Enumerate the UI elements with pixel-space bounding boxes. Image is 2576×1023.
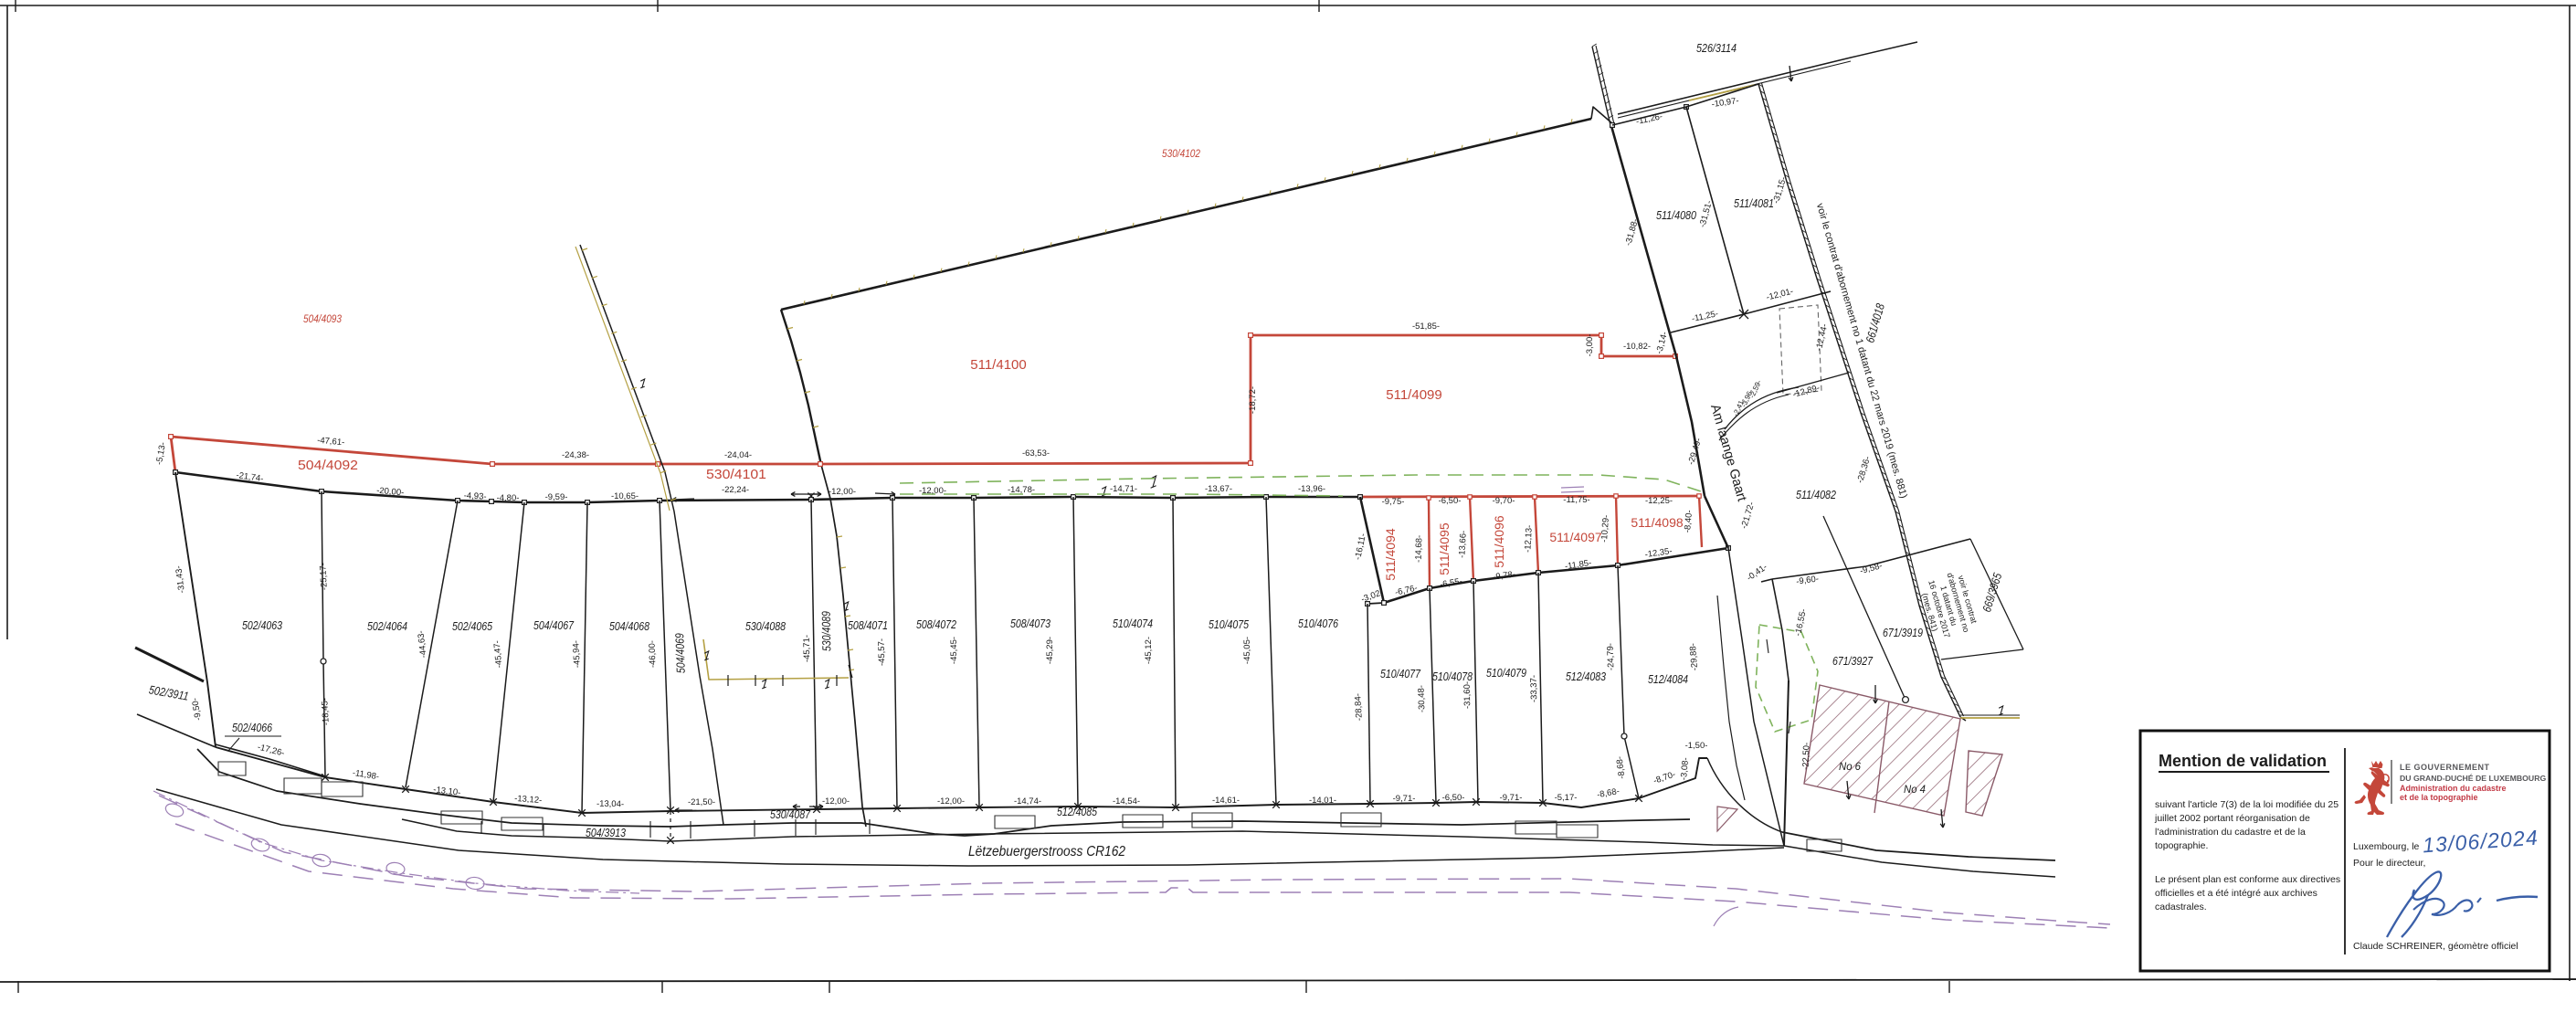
svg-text:530/4087: 530/4087 <box>770 807 811 821</box>
svg-text:officielles et a été intégré a: officielles et a été intégré aux archive… <box>2155 888 2317 899</box>
svg-text:-13,96-: -13,96- <box>1298 484 1325 494</box>
svg-text:-14,78-: -14,78- <box>1008 485 1035 495</box>
svg-text:-45,29-: -45,29- <box>1045 637 1055 664</box>
svg-text:502/4063: 502/4063 <box>242 618 283 632</box>
svg-text:-12,13-: -12,13- <box>1523 525 1535 554</box>
svg-text:-14,54-: -14,54- <box>1113 796 1140 807</box>
svg-text:-6,50-: -6,50- <box>1439 496 1462 506</box>
svg-text:504/3913: 504/3913 <box>586 826 627 839</box>
svg-text:669/3965: 669/3965 <box>1980 571 2004 614</box>
svg-text:-28,36-: -28,36- <box>1855 455 1873 484</box>
svg-text:-16,55-: -16,55- <box>1793 608 1809 638</box>
svg-text:511/4082: 511/4082 <box>1796 488 1837 501</box>
svg-text:-13,04-: -13,04- <box>596 799 624 810</box>
svg-text:-45,12-: -45,12- <box>1144 637 1154 664</box>
svg-text:-12,00-: -12,00- <box>937 796 965 807</box>
svg-text:502/4065: 502/4065 <box>452 619 493 633</box>
svg-text:-2,59-: -2,59- <box>1747 378 1763 399</box>
svg-text:-11,26-: -11,26- <box>1635 111 1663 127</box>
svg-text:510/4077: 510/4077 <box>1380 667 1421 680</box>
svg-text:Luxembourg, le: Luxembourg, le <box>2353 841 2420 852</box>
svg-text:504/4067: 504/4067 <box>533 618 575 632</box>
svg-text:-30,48-: -30,48- <box>1416 685 1427 712</box>
svg-text:-24,38-: -24,38- <box>562 450 589 460</box>
svg-text:508/4072: 508/4072 <box>916 617 957 631</box>
svg-text:No 6: No 6 <box>1839 760 1861 773</box>
svg-text:-13,66-: -13,66- <box>1457 531 1469 559</box>
svg-text:508/4073: 508/4073 <box>1010 617 1051 630</box>
svg-text:504/4069: 504/4069 <box>672 633 688 673</box>
svg-text:-14,74-: -14,74- <box>1014 796 1041 807</box>
svg-text:cadastrales.: cadastrales. <box>2155 902 2207 912</box>
svg-text:-3,08-: -3,08- <box>1679 757 1691 781</box>
svg-text:topographie.: topographie. <box>2155 840 2208 851</box>
svg-text:-46,00-: -46,00- <box>647 640 658 668</box>
svg-text:-4,80-: -4,80- <box>497 493 520 503</box>
svg-text:Claude SCHREINER, géomètre off: Claude SCHREINER, géomètre officiel <box>2353 941 2518 952</box>
svg-text:-11,98-: -11,98- <box>352 768 380 782</box>
svg-text:-9,60-: -9,60- <box>1796 574 1820 586</box>
svg-text:671/3919: 671/3919 <box>1883 626 1923 639</box>
svg-text:LE GOUVERNEMENT: LE GOUVERNEMENT <box>2400 763 2490 772</box>
svg-text:-16,11-: -16,11- <box>1353 533 1368 561</box>
svg-text:-13,12-: -13,12- <box>514 794 543 806</box>
svg-text:-33,37-: -33,37- <box>1529 675 1540 702</box>
svg-text:No 4: No 4 <box>1904 783 1926 796</box>
svg-text:-3,14-: -3,14- <box>1654 331 1670 355</box>
svg-text:Administration du cadastre: Administration du cadastre <box>2400 784 2507 793</box>
svg-text:-8,40-: -8,40- <box>1683 510 1694 533</box>
svg-text:-18,72-: -18,72- <box>1248 386 1258 414</box>
svg-text:Lëtzebuergerstrooss CR162: Lëtzebuergerstrooss CR162 <box>968 844 1125 860</box>
svg-text:et de la topographie: et de la topographie <box>2400 793 2478 802</box>
svg-text:-24,04-: -24,04- <box>724 450 752 460</box>
svg-text:-1,50-: -1,50- <box>1685 741 1708 751</box>
svg-text:-44,63-: -44,63- <box>416 630 428 659</box>
svg-text:juillet 2002 portant réorganis: juillet 2002 portant réorganisation de <box>2154 813 2310 824</box>
svg-text:-9,50-: -9,50- <box>190 697 204 721</box>
svg-text:-5,13-: -5,13- <box>154 441 168 465</box>
svg-text:511/4080: 511/4080 <box>1656 208 1697 222</box>
svg-text:502/4064: 502/4064 <box>367 619 407 633</box>
svg-text:-22,24-: -22,24- <box>722 485 749 495</box>
svg-text:-8,70-: -8,70- <box>1652 769 1677 786</box>
svg-text:-12,25-: -12,25- <box>1645 496 1673 506</box>
svg-text:512/4083: 512/4083 <box>1566 670 1607 683</box>
svg-text:-14,01-: -14,01- <box>1309 796 1336 806</box>
svg-text:-31,43-: -31,43- <box>174 565 187 594</box>
svg-text:-22,50-: -22,50- <box>1800 743 1811 770</box>
svg-text:-45,71-: -45,71- <box>802 635 813 662</box>
svg-text:502/3911: 502/3911 <box>148 682 190 702</box>
svg-text:-21,72-: -21,72- <box>1739 501 1757 530</box>
svg-text:-9,71-: -9,71- <box>1500 793 1523 803</box>
svg-text:530/4089: 530/4089 <box>819 611 834 651</box>
svg-text:-8,68-: -8,68- <box>1615 755 1628 779</box>
svg-text:-5,17-: -5,17- <box>1555 793 1578 803</box>
svg-text:510/4074: 510/4074 <box>1113 617 1153 630</box>
svg-text:-51,85-: -51,85- <box>1412 322 1440 332</box>
svg-text:504/4068: 504/4068 <box>609 619 650 633</box>
svg-text:510/4079: 510/4079 <box>1486 666 1526 680</box>
svg-text:-28,84-: -28,84- <box>1353 693 1365 722</box>
svg-text:504/4093: 504/4093 <box>303 312 342 325</box>
svg-text:Pour le directeur,: Pour le directeur, <box>2353 858 2425 869</box>
svg-text:suivant l'article 7(3) de la l: suivant l'article 7(3) de la loi modifié… <box>2155 799 2338 810</box>
svg-text:Le présent plan est conforme a: Le présent plan est conforme aux directi… <box>2155 874 2340 885</box>
svg-text:-9,59-: -9,59- <box>545 492 568 502</box>
svg-text:512/4085: 512/4085 <box>1057 805 1098 818</box>
svg-text:-18,45-: -18,45- <box>320 698 332 726</box>
svg-text:-9,71-: -9,71- <box>1393 794 1416 804</box>
svg-text:-12,01-: -12,01- <box>1765 287 1794 303</box>
svg-text:-29,88-: -29,88- <box>1688 643 1700 671</box>
svg-text:-45,94-: -45,94- <box>571 640 583 669</box>
svg-text:-24,79-: -24,79- <box>1605 643 1616 670</box>
svg-text:510/4078: 510/4078 <box>1432 670 1473 683</box>
svg-text:511/4094: 511/4094 <box>1383 528 1398 581</box>
svg-text:-45,47-: -45,47- <box>492 640 505 669</box>
svg-text:508/4071: 508/4071 <box>848 618 888 632</box>
svg-text:510/4075: 510/4075 <box>1209 617 1250 631</box>
svg-text:-10,65-: -10,65- <box>611 491 639 501</box>
svg-text:-21,50-: -21,50- <box>688 797 715 807</box>
svg-text:511/4097: 511/4097 <box>1549 530 1602 544</box>
svg-text:-13,67-: -13,67- <box>1205 484 1232 494</box>
svg-text:-25,17-: -25,17- <box>318 563 330 591</box>
svg-text:511/4081: 511/4081 <box>1734 196 1774 210</box>
svg-text:504/4092: 504/4092 <box>298 458 358 473</box>
svg-text:-21,74-: -21,74- <box>236 470 264 484</box>
svg-text:-9,78-: -9,78- <box>1493 569 1516 582</box>
svg-text:-47,61-: -47,61- <box>317 436 345 448</box>
svg-text:511/4095: 511/4095 <box>1437 522 1452 575</box>
svg-text:671/3927: 671/3927 <box>1832 654 1874 668</box>
svg-text:-9,58-: -9,58- <box>1859 561 1884 576</box>
svg-text:510/4076: 510/4076 <box>1298 617 1339 630</box>
svg-text:511/4100: 511/4100 <box>970 357 1026 373</box>
svg-text:-12,44-: -12,44- <box>1814 323 1830 353</box>
svg-text:-10,82-: -10,82- <box>1623 342 1651 352</box>
svg-text:-12,89-: -12,89- <box>1791 383 1821 399</box>
svg-text:-31,88-: -31,88- <box>1623 217 1641 247</box>
svg-text:-14,68-: -14,68- <box>1413 535 1424 563</box>
svg-text:511/4098: 511/4098 <box>1631 515 1684 530</box>
svg-text:526/3114: 526/3114 <box>1696 41 1737 55</box>
svg-text:-6,55-: -6,55- <box>1439 576 1462 590</box>
svg-text:-14,71-: -14,71- <box>1110 484 1137 494</box>
svg-text:-63,53-: -63,53- <box>1022 448 1050 459</box>
svg-text:-4,93-: -4,93- <box>463 490 486 501</box>
svg-text:511/4096: 511/4096 <box>1492 515 1506 568</box>
svg-text:661/4018: 661/4018 <box>1863 301 1887 344</box>
svg-text:-11,85-: -11,85- <box>1564 558 1592 572</box>
svg-text:512/4084: 512/4084 <box>1648 672 1688 686</box>
svg-text:511/4099: 511/4099 <box>1386 387 1441 403</box>
svg-text:-31,60-: -31,60- <box>1462 681 1473 709</box>
svg-text:-45,57-: -45,57- <box>877 638 888 666</box>
svg-text:-12,00-: -12,00- <box>822 796 850 807</box>
svg-text:l'administration du cadastre e: l'administration du cadastre et de la <box>2155 827 2306 838</box>
svg-text:-8,68-: -8,68- <box>1596 786 1620 800</box>
svg-text:502/4066: 502/4066 <box>232 721 273 734</box>
svg-text:-9,75-: -9,75- <box>1382 497 1405 507</box>
svg-text:-9,70-: -9,70- <box>1493 496 1515 506</box>
svg-text:-12,00-: -12,00- <box>919 486 946 496</box>
svg-text:-29,49-: -29,49- <box>1686 437 1704 466</box>
svg-text:Am laange Gaart: Am laange Gaart <box>1707 403 1749 503</box>
svg-text:-45,05-: -45,05- <box>1242 637 1252 664</box>
svg-text:-11,75-: -11,75- <box>1563 495 1589 505</box>
svg-text:530/4088: 530/4088 <box>745 619 787 633</box>
svg-text:-3,02-: -3,02- <box>1360 587 1385 605</box>
svg-text:-3,00-: -3,00- <box>1585 334 1595 357</box>
svg-text:530/4101: 530/4101 <box>706 467 766 482</box>
svg-text:DU GRAND-DUCHÉ DE LUXEMBOURG: DU GRAND-DUCHÉ DE LUXEMBOURG <box>2400 774 2546 783</box>
svg-text:-31,51-: -31,51- <box>1697 199 1714 228</box>
svg-text:-12,00-: -12,00- <box>829 487 856 497</box>
svg-text:-45,45-: -45,45- <box>949 637 959 664</box>
svg-text:-13,10-: -13,10- <box>433 785 461 798</box>
svg-text:530/4102: 530/4102 <box>1162 147 1200 160</box>
svg-text:-6,50-: -6,50- <box>1442 793 1465 803</box>
svg-text:Mention de validation: Mention de validation <box>2159 752 2327 770</box>
svg-text:voir le contrat d'abornement n: voir le contrat d'abornement no 1 datant… <box>1814 202 1909 500</box>
svg-text:-14,61-: -14,61- <box>1212 796 1240 806</box>
